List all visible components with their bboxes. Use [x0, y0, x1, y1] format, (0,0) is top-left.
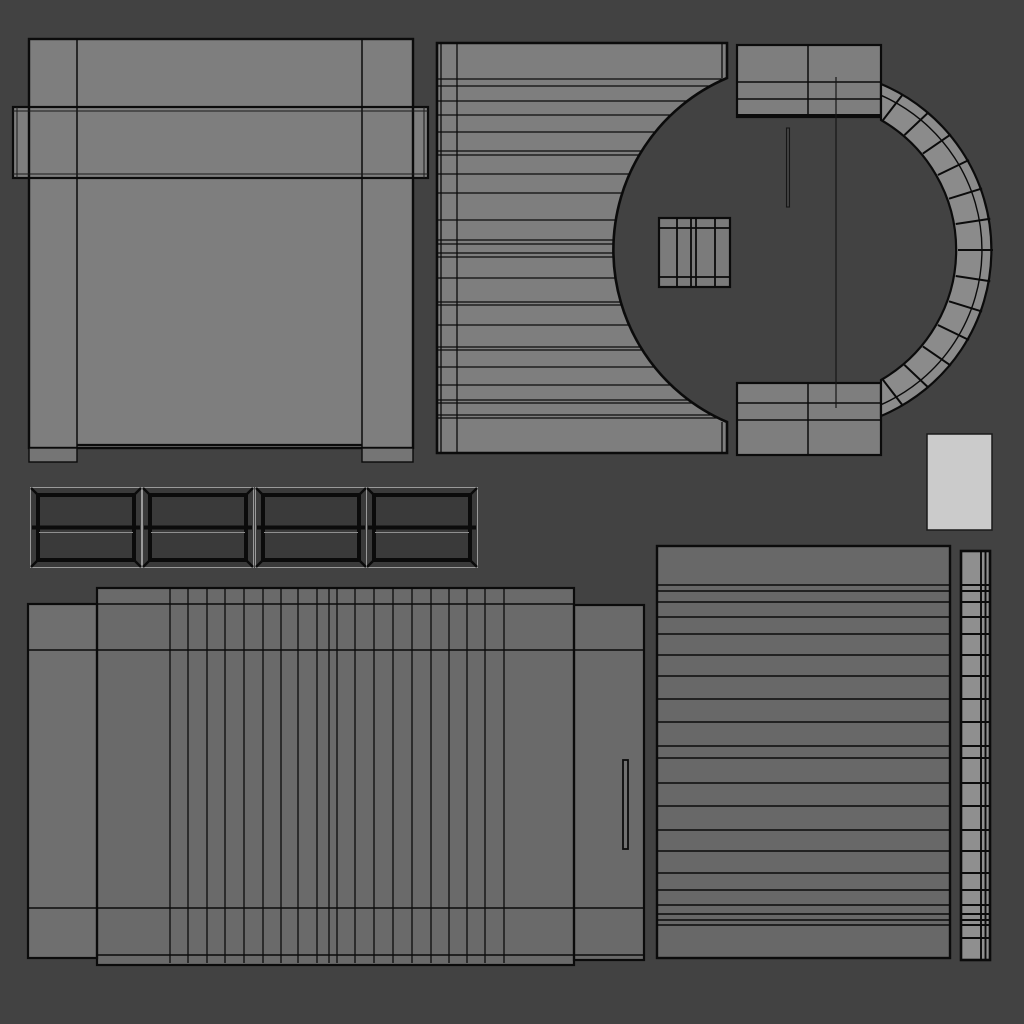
uv-wireframe-svg	[0, 0, 1024, 1024]
arch-block-top	[737, 45, 881, 117]
island-blank-swatch[interactable]	[927, 434, 992, 530]
door-left-stile	[28, 604, 97, 958]
panel-band	[13, 107, 428, 178]
island-plank-door[interactable]	[28, 588, 644, 965]
door-handle-seam	[623, 760, 628, 849]
panel-face	[29, 39, 413, 448]
slat-board-outline	[657, 546, 950, 958]
door-right-stile	[574, 605, 644, 960]
panel-tab-left	[29, 448, 77, 462]
bevel-frame-1	[31, 488, 142, 568]
island-slat-board[interactable]	[657, 546, 950, 958]
uv-editor-canvas[interactable]	[0, 0, 1024, 1024]
bevel-frame-4	[367, 488, 478, 568]
panel-tab-right	[362, 448, 413, 462]
island-segmented-strip[interactable]	[961, 551, 990, 960]
island-bevel-frame-strip[interactable]	[31, 488, 478, 568]
bevel-frame-3	[256, 488, 367, 568]
bevel-frame-2	[143, 488, 254, 568]
island-mullioned-panel[interactable]	[659, 218, 730, 287]
arch-block-bottom	[737, 383, 881, 455]
island-banded-panel[interactable]	[13, 39, 428, 462]
